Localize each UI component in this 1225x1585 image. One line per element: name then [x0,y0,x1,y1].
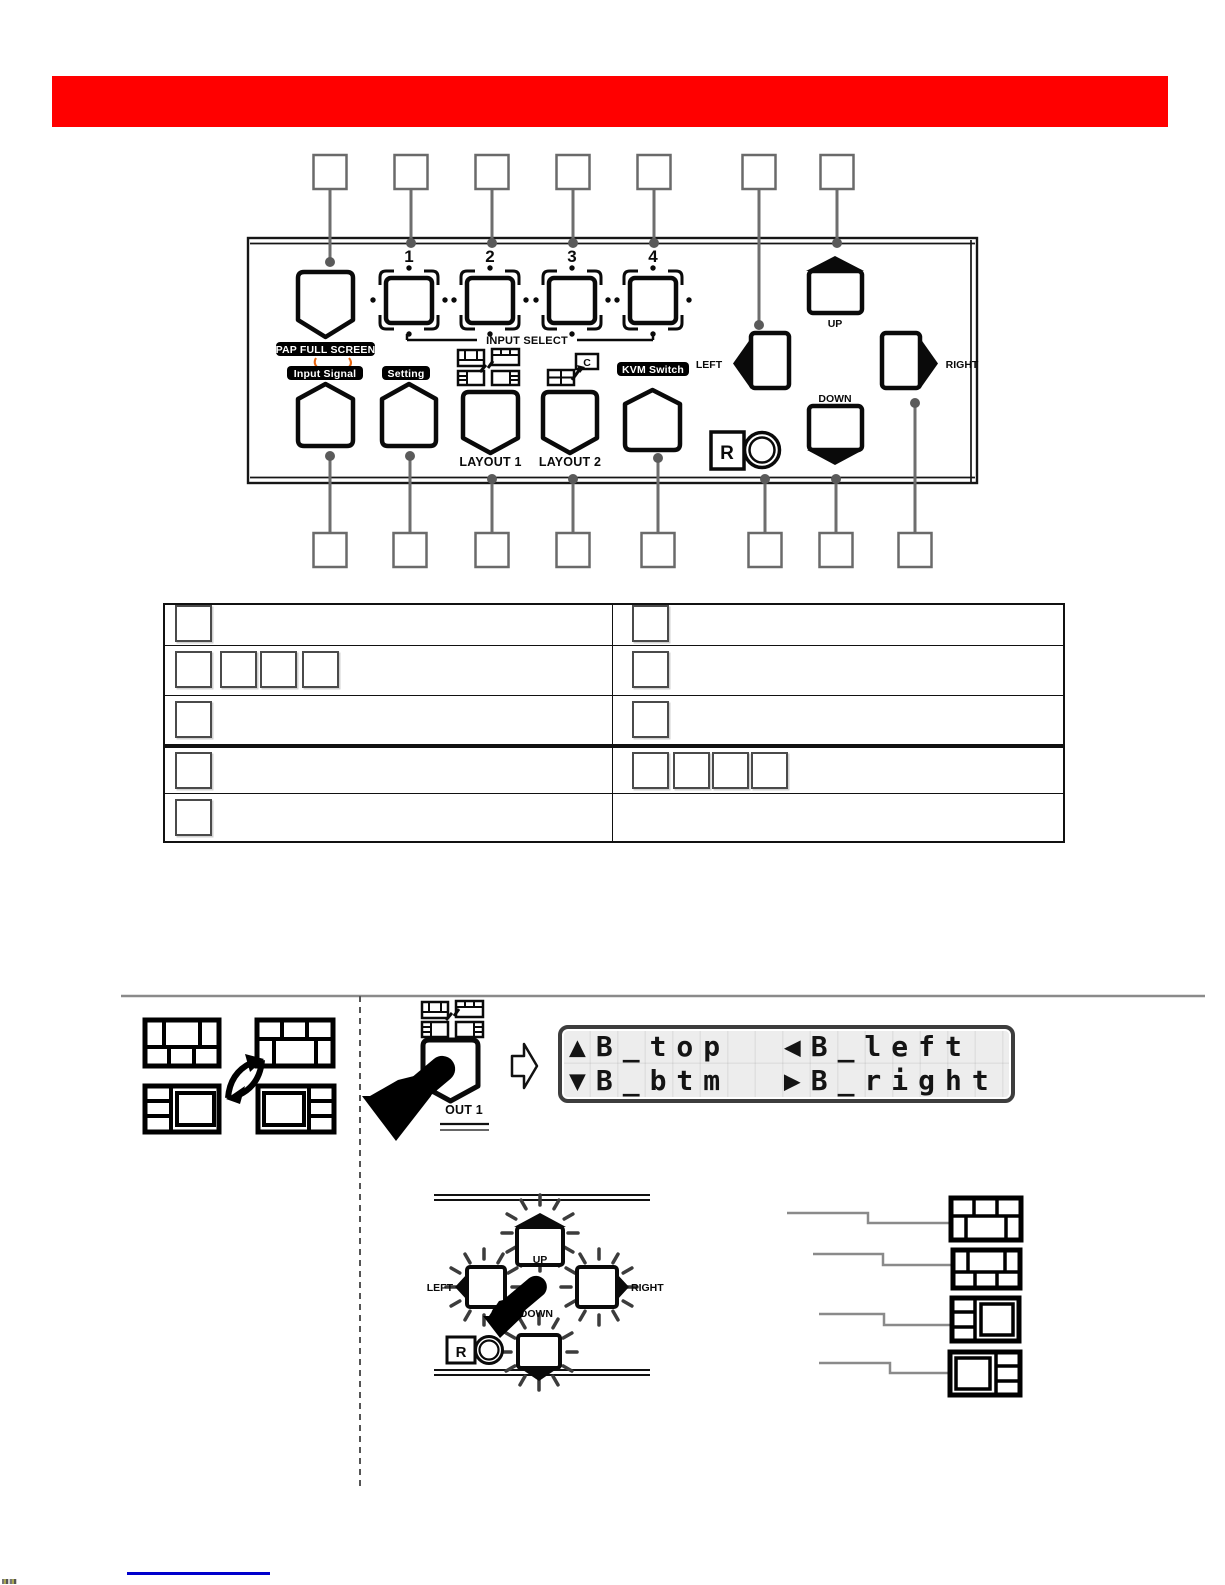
callout-box [557,533,590,567]
svg-text:1: 1 [404,247,413,266]
callout-box [557,155,590,189]
svg-text:RIGHT: RIGHT [631,1282,664,1294]
legend-table [163,603,1065,843]
svg-text:LEFT: LEFT [427,1282,454,1294]
legend-box [175,605,212,642]
legend-box [751,752,788,789]
svg-text:KVM Switch: KVM Switch [622,364,684,376]
callout-boxes-top [314,155,854,189]
svg-text:Input Signal: Input Signal [294,368,356,380]
legend-box [632,752,669,789]
svg-text:4: 4 [648,247,658,266]
page-edge-artifact [2,1579,17,1584]
svg-text:R: R [720,443,734,464]
callout-box [476,155,509,189]
cluster-left-button: LEFT [427,1267,505,1307]
legend-box [712,752,749,789]
svg-text:LAYOUT 2: LAYOUT 2 [539,455,601,469]
svg-text:Setting: Setting [388,368,425,380]
table-cell [613,794,1063,841]
panel-body [248,238,977,483]
svg-text:INPUT SELECT: INPUT SELECT [486,335,568,347]
input-signal-button: Input Signal [287,366,363,446]
manual-page: PAP FULL SCREEN 1 2 3 4 [0,0,1225,1585]
legend-box [632,651,669,688]
callout-box [743,155,776,189]
table-row [165,793,1063,841]
result-leader-lines [787,1213,953,1373]
table-cell [613,646,1063,695]
svg-text:PAP FULL SCREEN: PAP FULL SCREEN [276,344,376,356]
result-thumbnail-big-top [953,1250,1020,1288]
table-row [165,645,1063,695]
arrow-cluster-illustration: UP LEFT RIGHT DOWN R [427,1195,665,1390]
setting-button: Setting [382,366,436,446]
callout-box [899,533,932,567]
table-cell [613,748,1063,793]
result-thumbnail-small-left [952,1298,1019,1341]
svg-text:OUT 1: OUT 1 [445,1103,483,1117]
table-row [165,744,1063,793]
callout-box [638,155,671,189]
callout-box [394,533,427,567]
cluster-up-button: UP [514,1213,566,1266]
callout-box [395,155,428,189]
kvm-switch-button: KVM Switch [617,362,689,450]
footer-link-underline[interactable] [127,1572,270,1575]
table-cell [165,605,613,645]
callout-box [821,155,854,189]
table-cell [613,696,1063,744]
legend-box [175,701,212,738]
legend-box [632,605,669,642]
layout-thumbnail-small-top [257,1020,333,1066]
cluster-right-button: RIGHT [577,1267,664,1307]
callout-box [642,533,675,567]
layout2-button: LAYOUT 2 [539,392,601,469]
table-cell [613,605,1063,645]
svg-text:LAYOUT 1: LAYOUT 1 [459,455,521,469]
ir-receiver: R [711,432,780,469]
legend-box [175,752,212,789]
table-row [165,695,1063,744]
lcd-line-2: ▼B_btm ▶B_right [569,1064,1011,1098]
table-cell [165,696,613,744]
legend-box [673,752,710,789]
result-thumbnail-small-top [951,1198,1021,1240]
cluster-down-button: DOWN [518,1308,560,1381]
result-thumbnail-big-left [950,1352,1020,1395]
svg-text:DOWN: DOWN [818,393,851,405]
svg-text:C: C [583,357,591,369]
table-row [165,605,1063,645]
svg-text:LEFT: LEFT [696,359,723,371]
layout-cycle-icon-small [422,1001,483,1037]
svg-text:R: R [456,1344,467,1361]
legend-box [175,799,212,836]
table-cell [165,794,613,841]
svg-text:RIGHT: RIGHT [946,359,979,371]
svg-text:UP: UP [533,1254,548,1266]
callout-box [820,533,853,567]
layout1-button: LAYOUT 1 [459,392,521,469]
table-cell [165,748,613,793]
layout-thumbnail-big-top [145,1020,219,1066]
front-panel-diagram: PAP FULL SCREEN 1 2 3 4 [0,0,1225,600]
layout-thumbnail-big-left [258,1086,334,1132]
lcd-line-1: ▲B_top ◀B_left [569,1030,1011,1064]
legend-box [302,651,339,688]
callout-box [314,155,347,189]
cluster-ir-receiver: R [447,1337,503,1364]
down-button: DOWN [807,393,863,465]
callout-box [314,533,347,567]
callout-box [749,533,782,567]
legend-box [175,651,212,688]
svg-text:UP: UP [828,318,843,330]
callout-box [476,533,509,567]
svg-text:3: 3 [567,247,576,266]
svg-text:2: 2 [485,247,494,266]
table-cell [165,646,613,695]
callout-boxes-bottom [314,533,932,567]
legend-box [632,701,669,738]
lcd-display: ▲B_top ◀B_left ▼B_btm ▶B_right [558,1025,1015,1103]
legend-box [220,651,257,688]
layout-thumbnail-small-left [145,1086,219,1132]
result-arrow-icon [512,1044,537,1088]
legend-box [260,651,297,688]
